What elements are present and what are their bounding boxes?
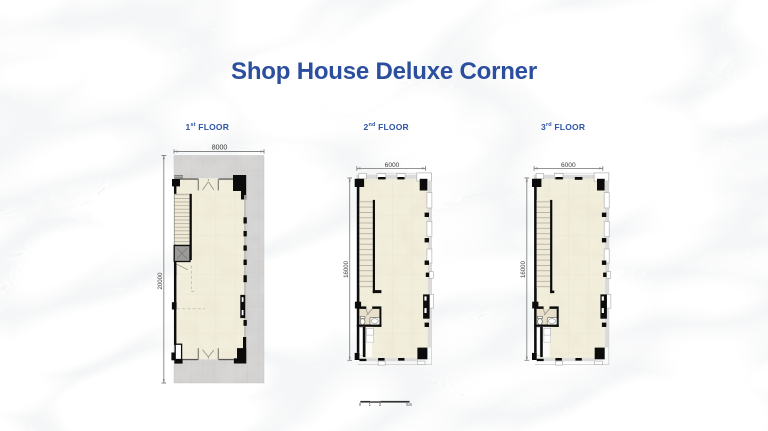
svg-text:5m: 5m <box>406 402 412 407</box>
svg-text:2: 2 <box>379 402 382 407</box>
svg-text:0: 0 <box>359 402 362 407</box>
svg-text:6000: 6000 <box>561 162 576 169</box>
svg-text:16000: 16000 <box>343 260 350 278</box>
svg-text:8000: 8000 <box>212 145 228 152</box>
svg-text:1: 1 <box>369 402 372 407</box>
svg-text:16000: 16000 <box>520 260 527 278</box>
svg-text:6000: 6000 <box>385 162 400 169</box>
svg-text:20000: 20000 <box>157 272 164 290</box>
